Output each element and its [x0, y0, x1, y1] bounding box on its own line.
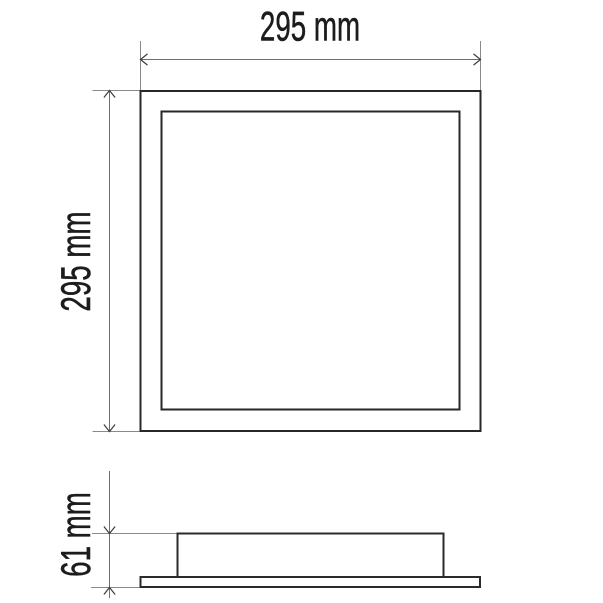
svg-text:295 mm: 295 mm: [52, 211, 99, 311]
svg-text:61 mm: 61 mm: [52, 492, 99, 577]
svg-text:295 mm: 295 mm: [260, 3, 360, 50]
